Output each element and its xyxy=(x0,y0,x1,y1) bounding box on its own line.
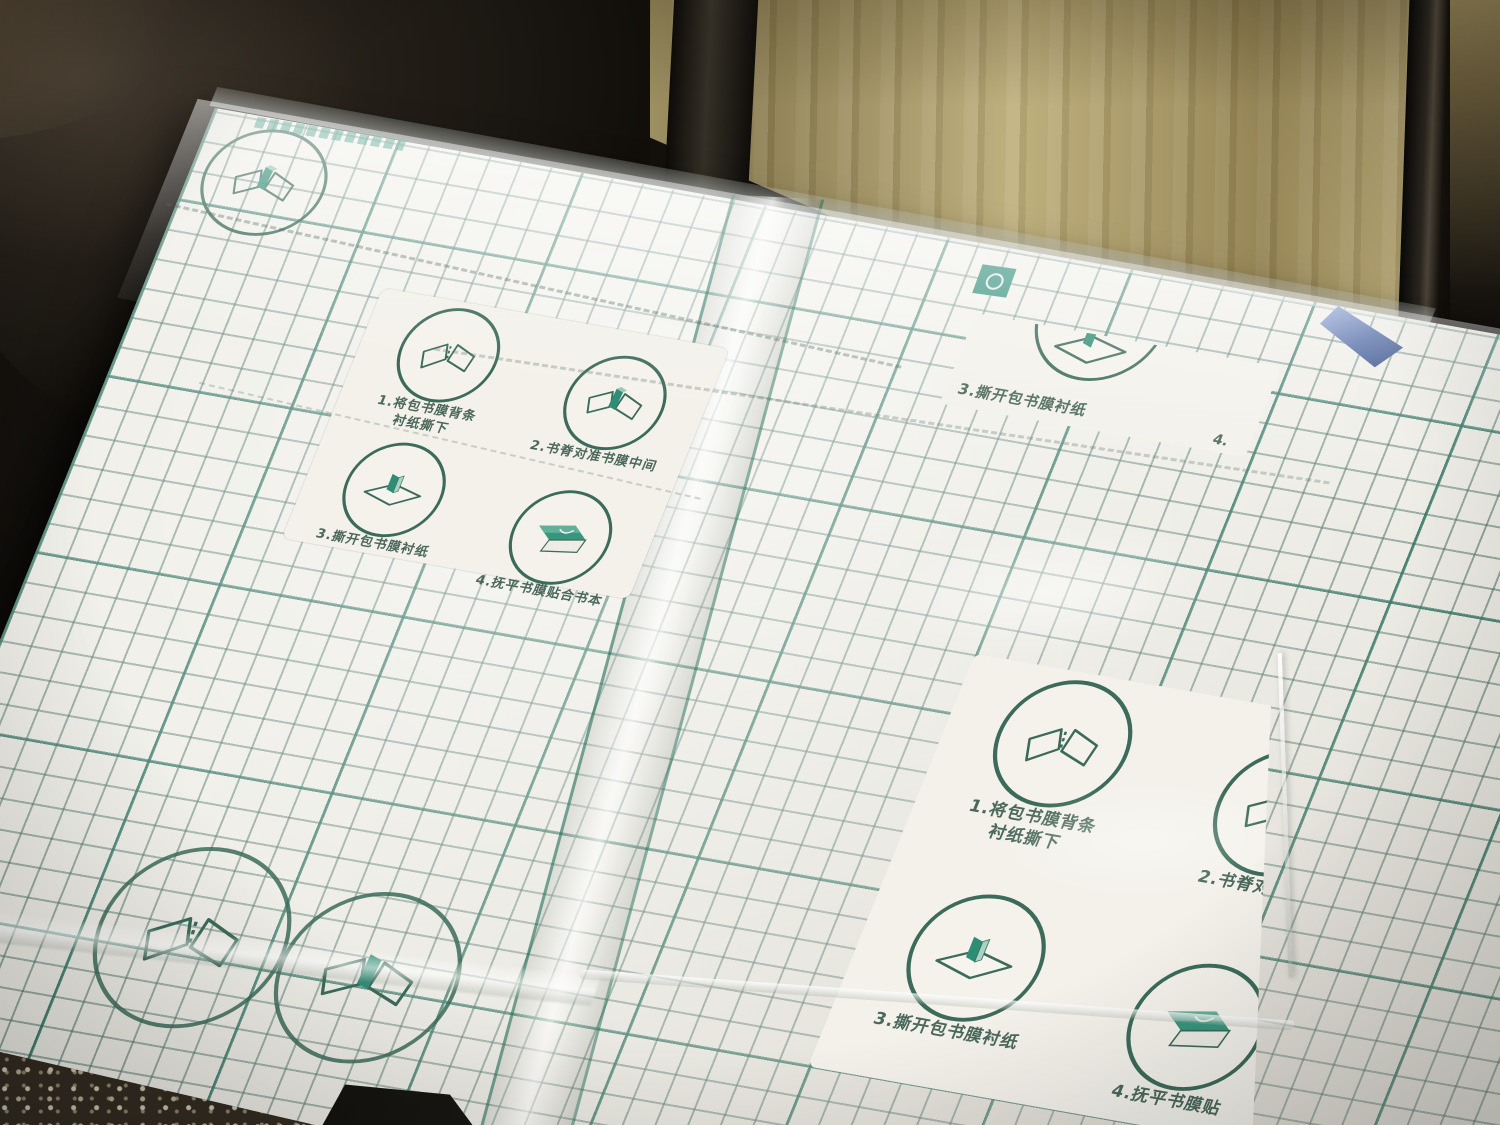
peel-liner-icon xyxy=(923,923,1028,993)
smooth-film-icon xyxy=(1143,992,1248,1062)
photo-scene: 1.将包书膜背条 衬纸撕下 2.书脊对准书膜中间 xyxy=(0,0,1500,1125)
instruction-circle xyxy=(494,482,628,592)
open-film-tear-strip-icon xyxy=(1010,709,1115,779)
peel-liner-icon xyxy=(355,463,433,515)
instruction-circle xyxy=(327,435,461,545)
smooth-film-icon xyxy=(522,511,600,563)
backrest-glare xyxy=(0,0,210,140)
